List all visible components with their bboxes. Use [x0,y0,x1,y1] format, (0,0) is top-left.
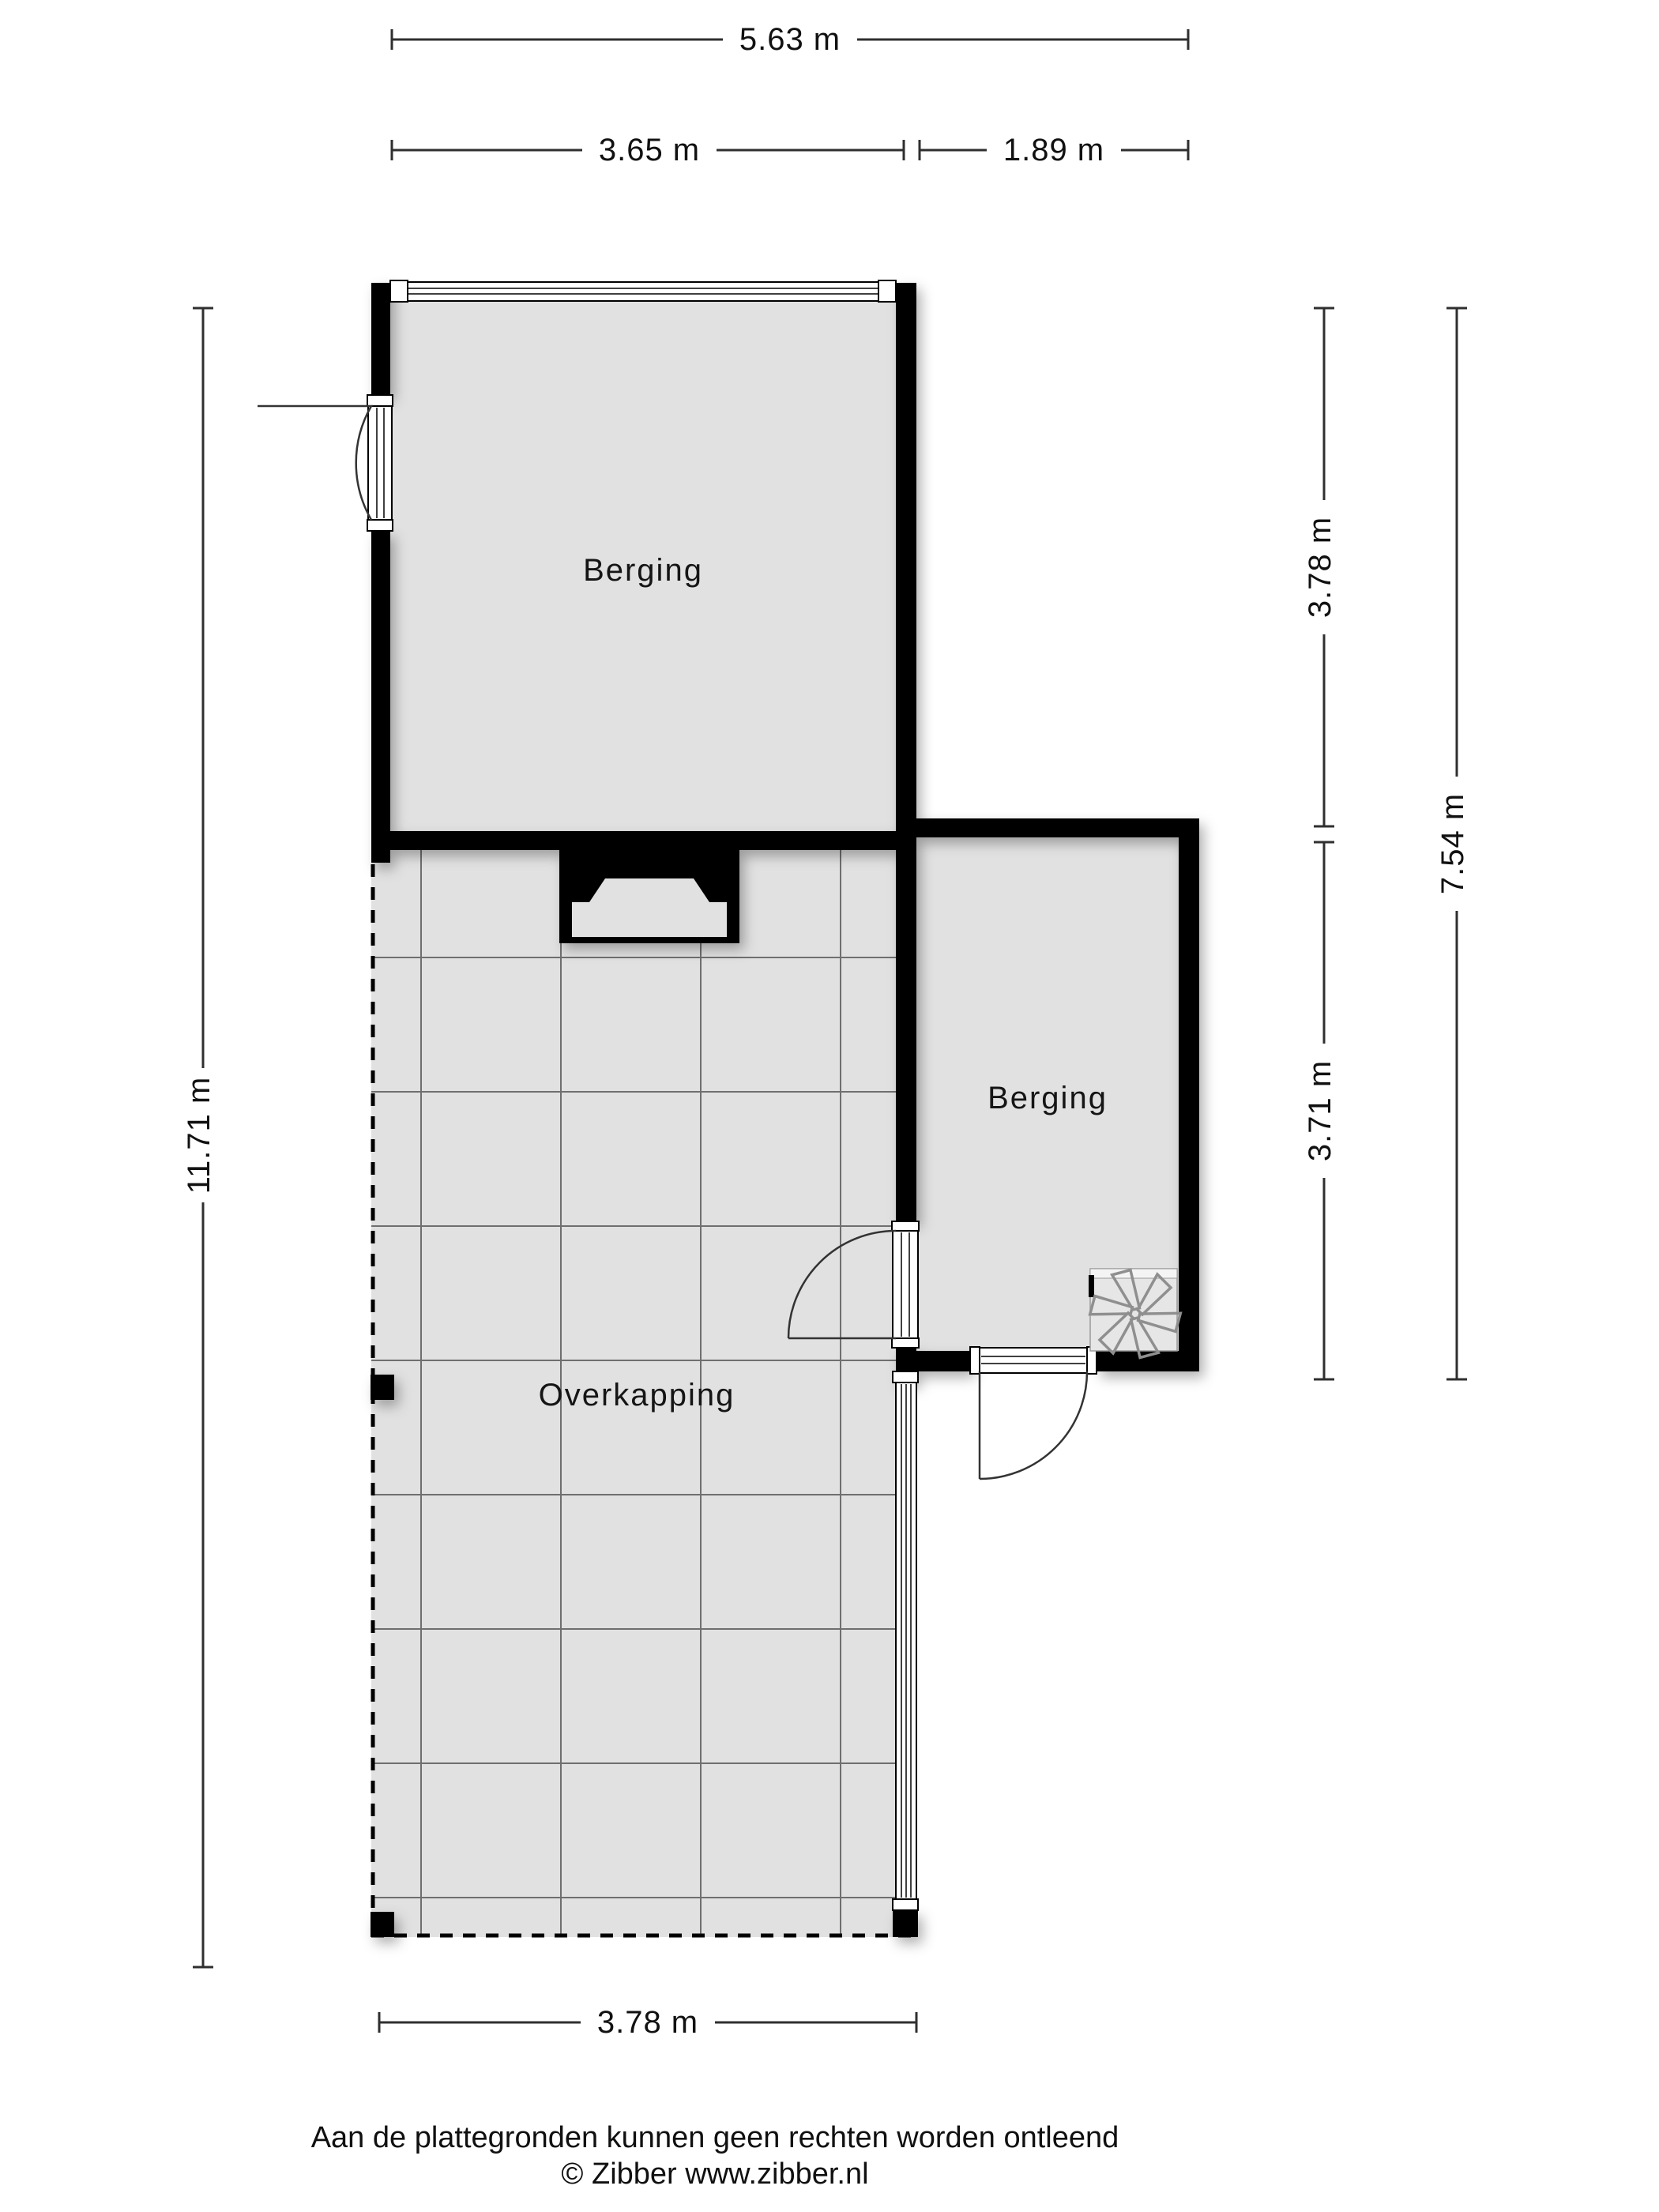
edge-jamb [893,1371,918,1382]
dim-top-left-value: 3.65 m [599,133,700,167]
door-berging-right-bottom [970,1347,1097,1479]
wall-berging-right-right [1179,818,1199,1371]
dim-right-upper-value: 3.78 m [1303,517,1337,618]
wall-left-lower [371,531,390,863]
boiler-tick [1089,1275,1094,1297]
door-jamb [367,520,393,531]
wall-berging-top-bottom [371,831,896,850]
dim-right-upper: 3.78 m [1303,308,1337,826]
door-jamb [892,1338,919,1348]
door-swing-arc [980,1371,1087,1479]
dim-right-total-value: 7.54 m [1435,793,1470,894]
door-jamb [892,1221,919,1231]
window-jamb-right [878,280,896,302]
room-label-berging-top: Berging [583,553,703,588]
boiler-unit [1083,1263,1187,1364]
wall-shared-vertical-upper [896,283,916,1221]
wall-berging-right-top [896,818,1199,837]
dim-top-left-segment: 3.65 m [392,133,904,167]
edge-jamb [893,1899,918,1910]
room-label-berging-right: Berging [987,1081,1108,1115]
wall-berging-right-bottom-right [1097,1351,1179,1371]
room-label-overkapping: Overkapping [539,1378,735,1413]
post-bottom-left [371,1912,394,1937]
door-swing-arc [258,406,371,520]
window-top [390,280,896,302]
wall-berging-right-bottom-left [896,1351,970,1371]
dim-left-total-value: 11.71 m [182,1077,216,1194]
dim-top-total-value: 5.63 m [739,22,841,57]
room-floors [371,302,1179,1937]
floor-plan-svg: Berging Berging Overkapping 5.63 m 3.65 … [0,0,1659,2212]
dim-top-right-value: 1.89 m [1003,133,1104,167]
dim-bottom-value: 3.78 m [597,2005,698,2040]
door-jamb [367,395,393,406]
slatted-open-edge [893,1371,918,1910]
dim-bottom: 3.78 m [379,2005,916,2040]
door-berging-top [258,395,393,531]
floorplan-page: Berging Berging Overkapping 5.63 m 3.65 … [0,0,1659,2212]
footer-copyright: © Zibber www.zibber.nl [561,2157,868,2191]
dim-top-right-segment: 1.89 m [920,133,1188,167]
post-bottom-right [893,1910,918,1937]
wall-left-upper [371,283,390,395]
door-jamb [970,1347,980,1374]
window-jamb-left [390,280,408,302]
dim-right-total: 7.54 m [1435,308,1470,1379]
dim-left-total: 11.71 m [182,308,216,1967]
dim-right-lower: 3.71 m [1303,842,1337,1379]
footer-disclaimer: Aan de plattegronden kunnen geen rechten… [311,2121,1119,2154]
post-left-middle [371,1375,394,1400]
dim-right-lower-value: 3.71 m [1303,1060,1337,1161]
footer: Aan de plattegronden kunnen geen rechten… [311,2121,1119,2191]
dim-top-total: 5.63 m [392,22,1188,57]
